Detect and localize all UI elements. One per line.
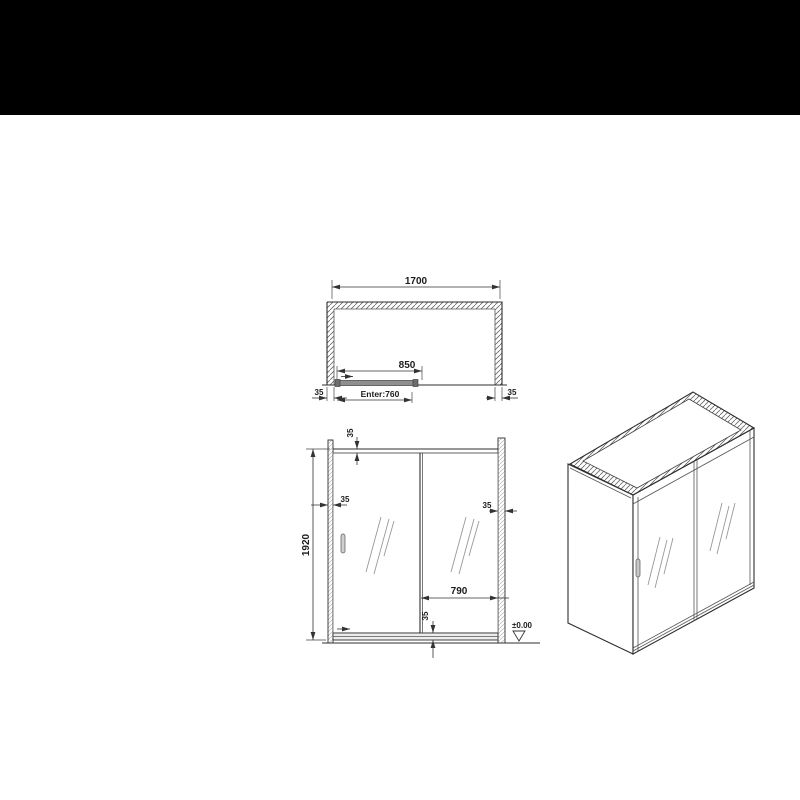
iso-left-face bbox=[568, 464, 633, 654]
dim-label-overall-width: 1700 bbox=[405, 276, 428, 287]
elev-right-wall-profile bbox=[498, 438, 505, 643]
elev-left-wall-profile bbox=[328, 440, 333, 643]
plan-view: 1700 850 Enter:760 bbox=[312, 276, 518, 403]
plan-roller-left bbox=[335, 380, 340, 387]
plan-left-wall-profile bbox=[327, 309, 334, 385]
dim-label-bottom-rail: 35 bbox=[421, 611, 430, 620]
dim-label-left-profile: 35 bbox=[315, 388, 324, 397]
elev-glass-area bbox=[333, 453, 498, 633]
elev-door-handle bbox=[341, 534, 345, 553]
dim-label-fixed-panel: 790 bbox=[451, 586, 468, 597]
technical-drawing: 1700 850 Enter:760 bbox=[0, 0, 800, 800]
screenshot-canvas: 1700 850 Enter:760 bbox=[0, 0, 800, 800]
plan-right-wall-profile bbox=[495, 309, 502, 385]
dim-label-top-rail: 35 bbox=[346, 428, 355, 437]
dim-label-sliding-panel: 850 bbox=[399, 360, 416, 371]
dim-label-elev-left-profile: 35 bbox=[341, 495, 350, 504]
plan-top-wall bbox=[327, 302, 502, 309]
plan-inner-frame bbox=[334, 309, 495, 385]
dim-label-entry: Enter:760 bbox=[361, 389, 400, 399]
dim-label-right-profile: 35 bbox=[508, 388, 517, 397]
dim-label-floor-level: ±0.00 bbox=[512, 621, 533, 630]
isometric-view bbox=[568, 392, 754, 654]
dim-label-elev-right-profile: 35 bbox=[483, 501, 492, 510]
floor-level-triangle bbox=[513, 631, 525, 641]
dim-label-overall-height: 1920 bbox=[301, 533, 312, 556]
iso-door-handle bbox=[636, 559, 640, 577]
plan-roller-right bbox=[413, 380, 418, 387]
front-elevation-view: 1920 35 35 35 790 35 ±0.00 bbox=[301, 428, 540, 658]
plan-sliding-panel bbox=[337, 381, 417, 386]
plan-outer-frame bbox=[327, 302, 502, 385]
